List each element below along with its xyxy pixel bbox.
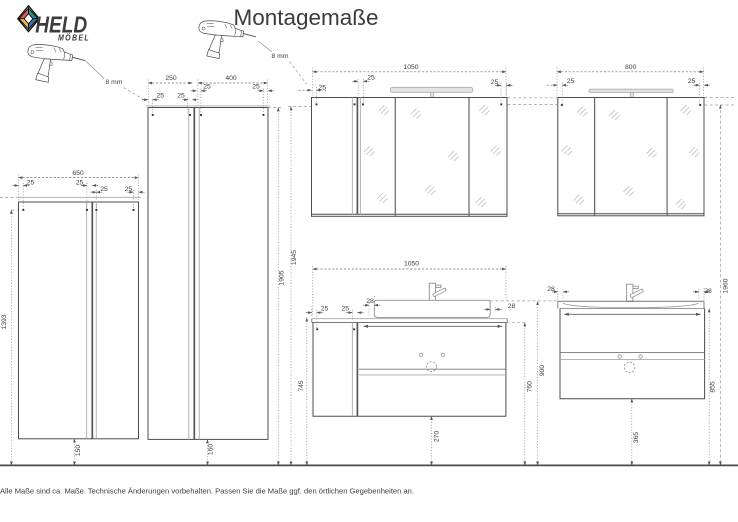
svg-text:25: 25 [491,79,499,86]
svg-text:270: 270 [434,431,441,443]
svg-text:1960: 1960 [722,278,729,293]
svg-text:160: 160 [207,444,214,456]
svg-text:28: 28 [508,303,516,310]
svg-text:745: 745 [298,380,305,392]
svg-text:25: 25 [177,93,185,100]
svg-text:28: 28 [366,298,374,305]
svg-text:400: 400 [225,75,237,82]
svg-text:650: 650 [72,170,84,177]
svg-text:25: 25 [342,306,350,313]
svg-text:Alle Maße sind ca. Maße. Techn: Alle Maße sind ca. Maße. Technische Ände… [0,487,414,496]
svg-text:760: 760 [526,381,533,393]
svg-text:1050: 1050 [403,64,418,71]
svg-text:150: 150 [75,445,82,457]
svg-text:25: 25 [252,84,260,91]
svg-text:MÖBEL: MÖBEL [58,33,90,42]
svg-text:1905: 1905 [278,270,285,285]
svg-text:25: 25 [321,306,329,313]
svg-text:365: 365 [633,432,640,444]
svg-text:8 mm: 8 mm [272,53,289,60]
svg-text:Montagemaße: Montagemaße [233,5,378,30]
svg-text:25: 25 [367,75,375,82]
svg-text:1945: 1945 [291,250,298,265]
svg-text:25: 25 [203,84,211,91]
svg-text:1050: 1050 [404,260,419,267]
svg-text:8 mm: 8 mm [106,79,123,86]
svg-text:25: 25 [688,78,696,85]
svg-text:900: 900 [539,365,546,377]
svg-text:25: 25 [157,93,165,100]
svg-text:800: 800 [625,64,637,71]
svg-text:250: 250 [165,75,177,82]
svg-text:1393: 1393 [1,314,8,329]
svg-text:25: 25 [567,78,575,85]
svg-text:855: 855 [710,381,717,393]
